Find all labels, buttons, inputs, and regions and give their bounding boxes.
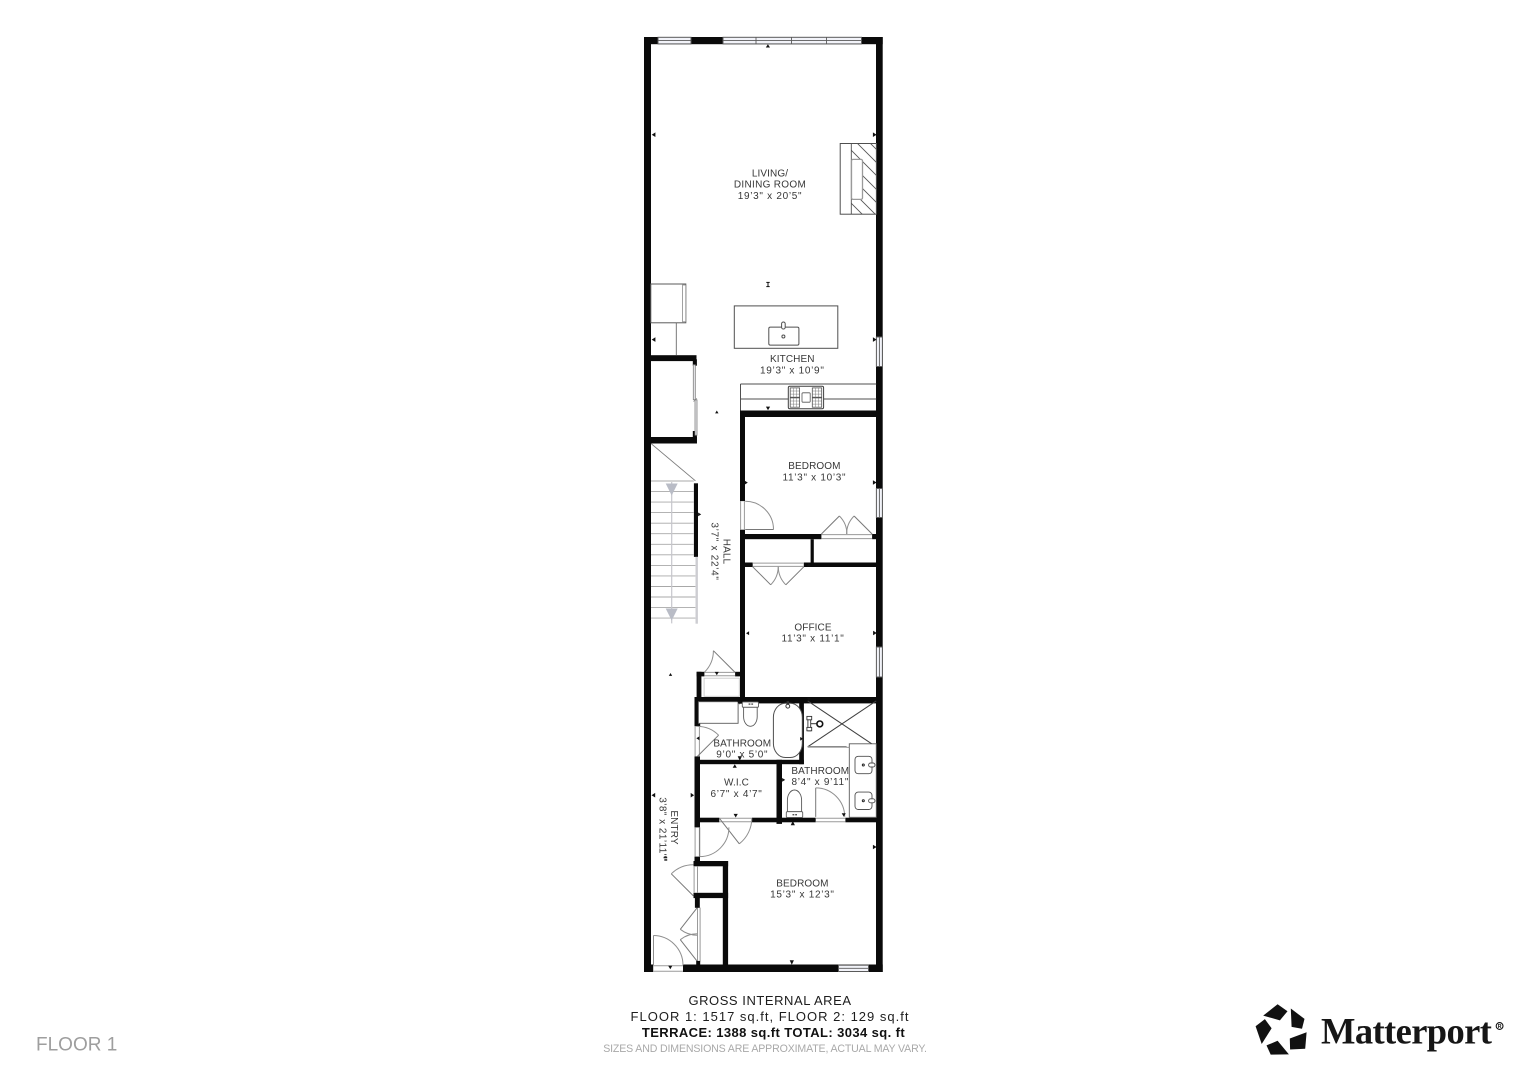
svg-text:BEDROOM15’3" x 12’3": BEDROOM15’3" x 12’3" [770,878,835,900]
svg-text:SIZES AND DIMENSIONS ARE APPRO: SIZES AND DIMENSIONS ARE APPROXIMATE, AC… [603,1043,927,1055]
svg-text:BATHROOM9’0" x 5’0": BATHROOM9’0" x 5’0" [713,738,771,760]
svg-text:TERRACE: 1388 sq.ft TOTAL: 303: TERRACE: 1388 sq.ft TOTAL: 3034 sq. ft [642,1025,905,1040]
svg-text:Matterport: Matterport [1321,1011,1492,1052]
svg-text:BATHROOM8’4" x 9’11": BATHROOM8’4" x 9’11" [791,766,849,788]
svg-text:R: R [1498,1024,1502,1030]
svg-text:FLOOR 1: 1517 sq.ft, FLOOR 2:: FLOOR 1: 1517 sq.ft, FLOOR 2: 129 sq.ft [631,1009,910,1024]
svg-text:FLOOR 1: FLOOR 1 [36,1035,117,1056]
svg-text:BEDROOM11’3" x 10’3": BEDROOM11’3" x 10’3" [782,461,846,484]
svg-text:GROSS INTERNAL AREA: GROSS INTERNAL AREA [688,993,851,1008]
